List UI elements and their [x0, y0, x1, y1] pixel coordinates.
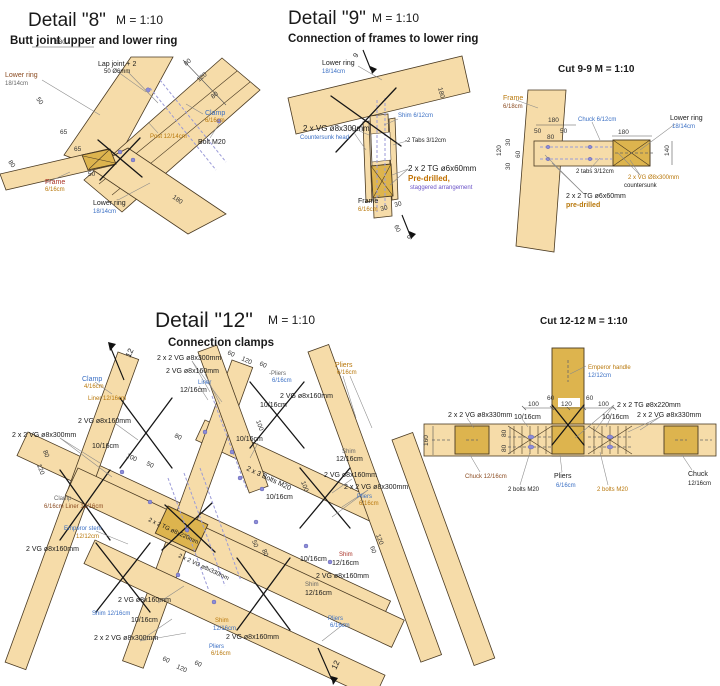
part-size-label: Countersunk head	[300, 135, 349, 141]
part-size-label: 10/16cm	[92, 443, 119, 450]
part-size-label: 18/14cm	[672, 124, 695, 130]
dim-label: 100	[598, 401, 609, 408]
part-label: Shim 6/12cm	[398, 113, 433, 119]
part-label: 2 x 2 VG ø8x300mm	[94, 635, 158, 642]
part-size-label: 6/16cm Liner 12/16cm	[44, 504, 103, 510]
part-label: 2 VG ø8x160mm	[26, 546, 79, 553]
part-size-label: 12/16cm	[332, 560, 359, 567]
part-size-label: 12/16cm	[213, 626, 236, 632]
part-size-label: 4/16cm	[84, 384, 104, 390]
part-size-label: countersunk	[624, 183, 658, 189]
dim-label: 80	[501, 429, 508, 437]
dim-label: 160	[423, 435, 430, 446]
part-size-label: 6/18cm	[503, 104, 523, 110]
part-label: 2 VG ø8x160mm	[316, 573, 369, 580]
dim-label: 60	[586, 395, 594, 402]
part-size-label: 6/16cm	[358, 207, 378, 213]
part-label: Liner 12/16cm	[88, 396, 126, 402]
drawing-sheet: Detail "8" M = 1:10 Butt joint upper and…	[0, 0, 720, 686]
note-label: staggered arrangement	[410, 185, 473, 191]
part-label: Shim	[339, 552, 353, 558]
part-size-label: 6/16cm	[359, 501, 379, 507]
dim-label: 65	[74, 146, 82, 153]
part-label: 2 x 2 VG ø8x300mm	[157, 355, 221, 362]
part-label: 2 x 2 TG ø6x60mm	[566, 193, 626, 200]
part-size-label: 18/14cm	[93, 209, 116, 215]
dim-label: 30	[505, 138, 512, 146]
part-label: Pliers	[335, 362, 353, 369]
part-size-label: 18/14cm	[5, 81, 28, 87]
part-label: Pliers	[328, 616, 343, 622]
part-size-label: 6/16cm	[337, 370, 357, 376]
part-label: 2 x 2 VG ø8x330mm	[448, 412, 512, 419]
part-label: Post 12/14cm	[150, 134, 187, 140]
part-label: Frame	[503, 95, 523, 102]
note-label: Pre-drilled,	[408, 174, 450, 183]
part-label: Frame	[45, 179, 65, 186]
detail-scale: M = 1:10	[116, 13, 163, 27]
part-label: Lap joint + 2	[98, 61, 136, 68]
part-label: Lower ring	[93, 200, 126, 207]
part-label: 2 tabs 3/12cm	[576, 169, 614, 175]
part-size-label: 12/16cm	[180, 387, 207, 394]
part-label: Emperor handle	[588, 365, 631, 371]
dim-label: 50	[88, 171, 96, 178]
cad-drawing: Detail "8" M = 1:10 Butt joint upper and…	[0, 0, 720, 686]
part-label: Shim 12/16cm	[92, 611, 130, 617]
part-label: Chuck 6/12cm	[578, 117, 616, 123]
detail-title: Detail "9"	[288, 8, 366, 29]
part-label: Clamp	[205, 110, 225, 117]
part-size-label: 12/16cm	[688, 481, 711, 487]
dim-label: 120	[561, 401, 572, 408]
part-label: 2 bolts M20	[508, 487, 540, 493]
part-label: 2 x 2 TG ø6x60mm	[408, 164, 477, 173]
part-size-label: 6/16cm	[45, 187, 65, 193]
dim-label: 140	[664, 145, 671, 156]
dim-label: 50	[560, 128, 568, 135]
part-size-label: 12/12cm	[588, 373, 611, 379]
part-size-label: 12/16cm	[336, 456, 363, 463]
part-size-label: 6/16cm	[330, 623, 350, 629]
part-label: Shim	[305, 582, 319, 588]
cut-title: Cut 9-9 M = 1:10	[558, 64, 635, 75]
part-size-label: 6/16cm	[272, 378, 292, 384]
part-label: Clamp	[54, 496, 72, 502]
part-size-label: 12/16cm	[305, 590, 332, 597]
dim-label: 180	[55, 39, 66, 46]
dim-label: 60	[515, 150, 522, 158]
dim-label: 100	[528, 401, 539, 408]
part-label: 2 VG ø8x160mm	[78, 418, 131, 425]
detail-scale: M = 1:10	[268, 313, 315, 327]
part-size-label: 50 Ø6mm	[104, 69, 130, 75]
part-label: 2 x 2 VG ø8x330mm	[637, 412, 701, 419]
part-label: 2 VG ø8x160mm	[280, 393, 333, 400]
part-size-label: 6/16cm	[205, 118, 225, 124]
dim-label: 180	[548, 117, 559, 124]
part-label: Pliers	[554, 473, 572, 480]
part-size-label: 10/16cm	[514, 414, 541, 421]
dim-label: 65	[60, 129, 68, 136]
part-label: Frame	[358, 198, 378, 205]
part-size-label: 10/16cm	[602, 414, 629, 421]
part-size-label: 18/14cm	[322, 69, 345, 75]
part-label: Bolt M20	[198, 139, 226, 146]
detail-subtitle: Connection of frames to lower ring	[288, 33, 478, 45]
detail-subtitle: Connection clamps	[168, 337, 274, 349]
part-label: Liner	[198, 380, 211, 386]
part-label: 2 x 2 TG ø8x220mm	[617, 402, 681, 409]
part-size-label: 10/16cm	[236, 436, 263, 443]
part-label: 2 x 2 VG ø8x300mm	[344, 484, 408, 491]
dim-label: 80	[547, 134, 555, 141]
part-size-label: 12/12cm	[76, 534, 99, 540]
part-label: 2 x VG ø8x300mm	[303, 124, 370, 133]
part-label: 2 x VG Ø8x300mm	[628, 175, 679, 181]
detail-title: Detail "8"	[28, 10, 106, 31]
note-label: pre-drilled	[566, 202, 600, 209]
part-label: 2 VG ø8x160mm	[166, 368, 219, 375]
part-label: Clamp	[82, 376, 102, 383]
dim-label: 120	[496, 145, 503, 156]
detail-subtitle: Butt joint upper and lower ring	[10, 35, 177, 47]
part-label: 2 VG ø8x160mm	[226, 634, 279, 641]
part-label: -Pliers	[269, 371, 286, 377]
detail-scale: M = 1:10	[372, 11, 419, 25]
part-label: Shim	[215, 618, 229, 624]
part-label: -2 Tabs 3/12cm	[405, 138, 446, 144]
part-size-label: 10/16cm	[300, 556, 327, 563]
part-label: Chuck 12/16cm	[465, 474, 507, 480]
part-size-label: 10/16cm	[266, 494, 293, 501]
dim-label: 50	[534, 128, 542, 135]
dim-label: 60	[547, 395, 555, 402]
part-label: 2 VG ø8x160mm	[324, 472, 377, 479]
part-label: Lower ring	[670, 115, 703, 122]
part-label: Shim	[342, 449, 356, 455]
part-label: Chuck	[688, 471, 708, 478]
detail-title: Detail "12"	[155, 309, 253, 332]
dim-label: 80	[501, 444, 508, 452]
part-size-label: 6/16cm	[556, 483, 576, 489]
part-label: 2 x 2 VG ø8x300mm	[12, 432, 76, 439]
dim-label: 180	[618, 129, 629, 136]
part-label: Lower ring	[322, 60, 355, 67]
cut-title: Cut 12-12 M = 1:10	[540, 316, 628, 327]
part-label: Lower ring	[5, 72, 38, 79]
part-label: Emperor stem	[64, 526, 102, 532]
part-label: 2 VG ø8x160mm	[118, 597, 171, 604]
part-size-label: 10/16cm	[260, 402, 287, 409]
dim-label: 30	[505, 162, 512, 170]
part-label: 2 bolts M20	[597, 487, 629, 493]
part-size-label: 6/16cm	[211, 651, 231, 657]
part-label: Pliers	[209, 644, 224, 650]
part-size-label: 10/16cm	[131, 617, 158, 624]
part-label: Pliers	[357, 494, 372, 500]
